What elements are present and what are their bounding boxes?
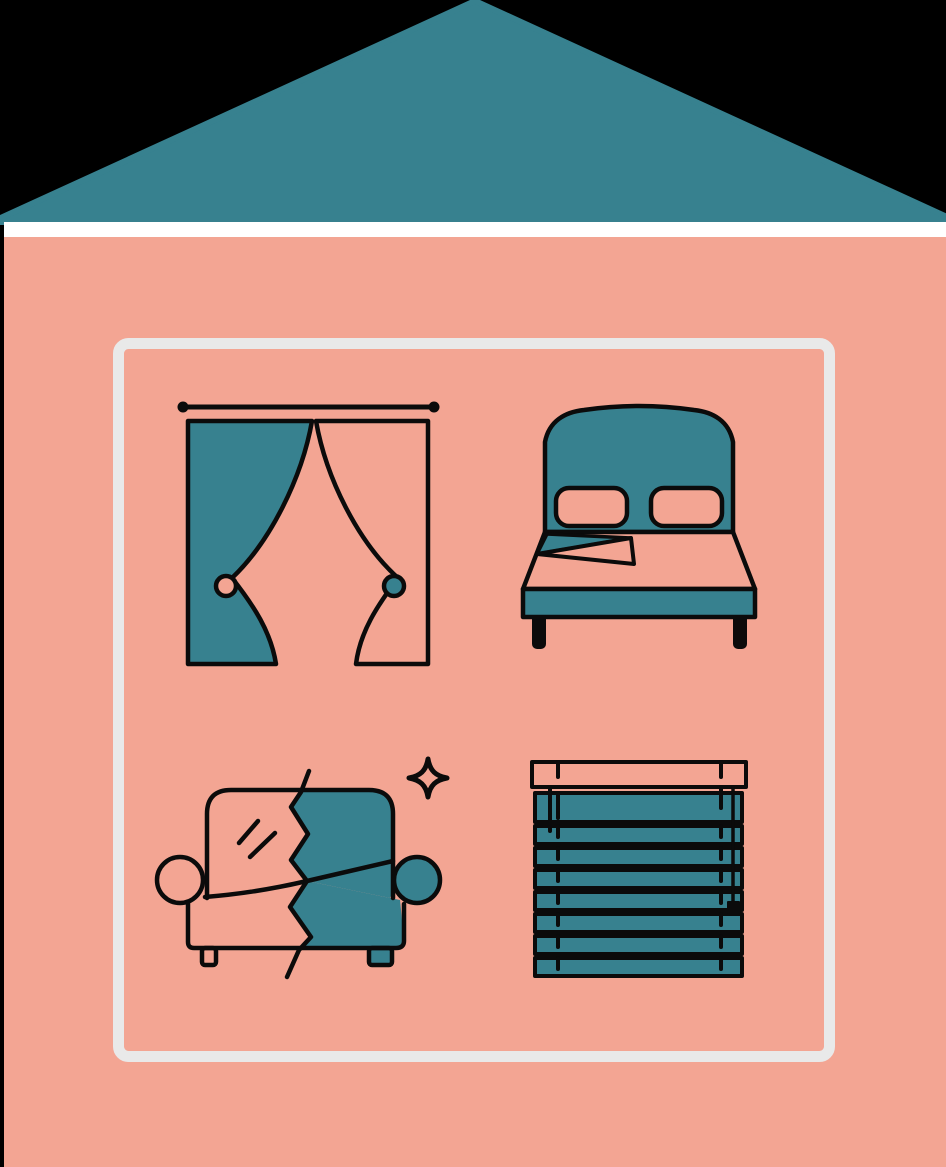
bed-pillow-left: [556, 488, 627, 526]
sofa-arm-left: [157, 857, 203, 903]
curtain-left-tieback: [216, 576, 236, 596]
house: [0, 1, 946, 1167]
sofa-foot-left: [202, 948, 216, 965]
bed-base: [523, 589, 755, 617]
blinds-pull-cord-knob: [727, 901, 740, 914]
house-illustration: [0, 0, 946, 1167]
blinds-slat: [535, 848, 742, 866]
blinds-icon: [532, 762, 746, 976]
curtain-right-tieback: [384, 576, 404, 596]
curtain-rod-right-finial: [429, 402, 440, 413]
bed-pillow-right: [651, 488, 722, 526]
sofa-foot-right: [369, 948, 392, 965]
blinds-slat: [535, 914, 742, 932]
blinds-slat: [535, 826, 742, 844]
bed-icon: [523, 406, 755, 649]
blinds-slat: [535, 958, 742, 976]
wall: [4, 237, 946, 1167]
blinds-head-rail: [532, 762, 746, 787]
blinds-slat: [535, 892, 742, 910]
curtain-rod-left-finial: [178, 402, 189, 413]
illustration-canvas: [0, 0, 946, 1167]
blinds-slat: [535, 793, 742, 822]
eave-strip: [4, 222, 946, 237]
blinds-slat: [535, 870, 742, 888]
sofa-arm-right: [394, 857, 440, 903]
blinds-slat: [535, 936, 742, 954]
